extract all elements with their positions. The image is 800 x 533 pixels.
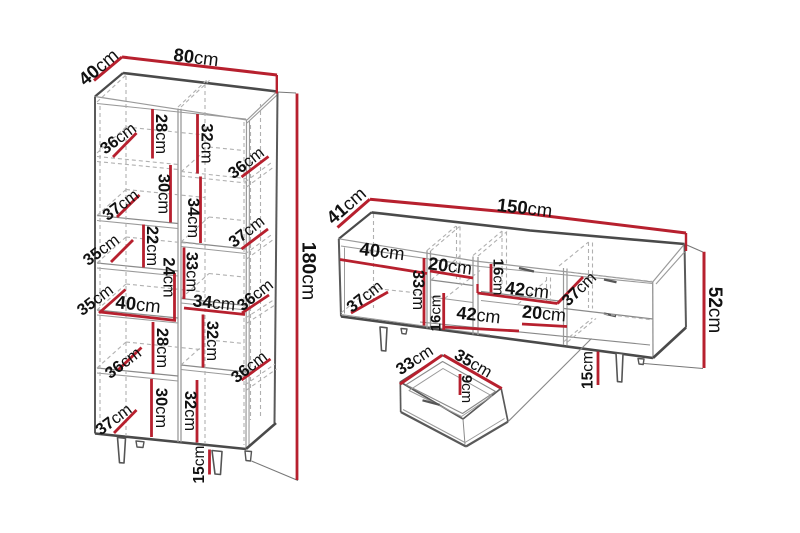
svg-text:28cm: 28cm [152, 114, 170, 154]
svg-text:15cm: 15cm [580, 351, 597, 389]
svg-text:52cm: 52cm [704, 287, 725, 333]
svg-text:32cm: 32cm [181, 391, 199, 431]
svg-text:28cm: 28cm [153, 328, 171, 368]
svg-text:9cm: 9cm [458, 375, 475, 403]
svg-text:16cm: 16cm [490, 259, 507, 296]
svg-text:32cm: 32cm [203, 321, 221, 361]
svg-text:16cm: 16cm [427, 295, 444, 332]
svg-text:34cm: 34cm [184, 198, 202, 238]
svg-text:30cm: 30cm [152, 388, 170, 428]
svg-text:33cm: 33cm [409, 270, 427, 310]
svg-text:180cm: 180cm [297, 242, 319, 301]
svg-text:24cm: 24cm [159, 257, 177, 297]
svg-text:30cm: 30cm [154, 174, 172, 214]
svg-text:33cm: 33cm [182, 252, 200, 292]
svg-text:32cm: 32cm [197, 123, 215, 163]
svg-text:22cm: 22cm [143, 226, 161, 266]
svg-text:20cm: 20cm [521, 301, 567, 325]
svg-text:15cm: 15cm [191, 446, 208, 484]
